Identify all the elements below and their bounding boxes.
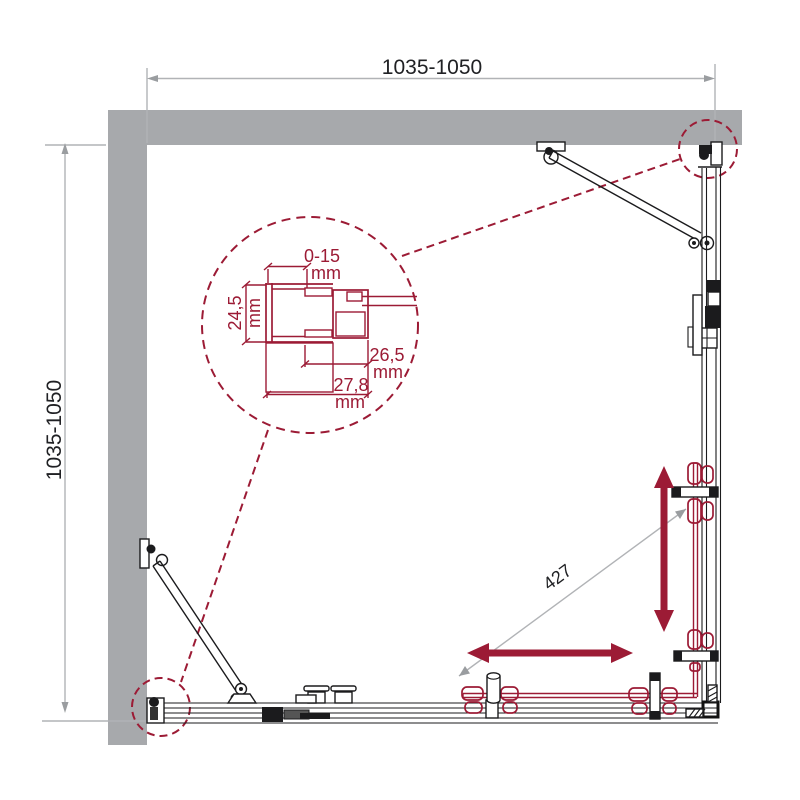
door-slide-arrow-horizontal: [467, 643, 633, 663]
inner-depth-unit: mm: [373, 362, 403, 382]
diagram-canvas: 1035-1050 1035-1050: [0, 0, 800, 800]
profile-height-unit: mm: [244, 298, 264, 328]
installation-diagram: 1035-1050 1035-1050: [0, 0, 800, 800]
outer-depth-unit: mm: [335, 392, 365, 412]
wall-l-shape: [108, 110, 742, 745]
door-slide-arrow-vertical: [654, 466, 674, 632]
door-rollers-bottom-corner: [629, 673, 677, 719]
bottom-track: [147, 685, 718, 723]
detail-callout: 0-15 mm 24,5 mm 26,5 mm 27,8 mm: [202, 217, 418, 433]
leader-to-bottom-left-corner: [181, 430, 268, 682]
sliding-door-bottom: [462, 673, 697, 719]
panel-wall-bracket-hardware: [688, 280, 720, 355]
door-panel-label: 427: [539, 560, 575, 594]
room-walls: [108, 110, 742, 745]
door-knob: [487, 673, 500, 703]
left-height-label: 1035-1050: [43, 380, 66, 480]
door-rollers-right-lower: [674, 630, 718, 671]
top-width-label: 1035-1050: [382, 56, 482, 79]
top-wall-support-arm: [537, 142, 714, 250]
adjustment-unit: mm: [311, 263, 341, 283]
profile-height-value: 24,5: [225, 295, 245, 330]
sliding-door-right: [672, 463, 718, 697]
track-roller-hardware: [262, 686, 356, 722]
